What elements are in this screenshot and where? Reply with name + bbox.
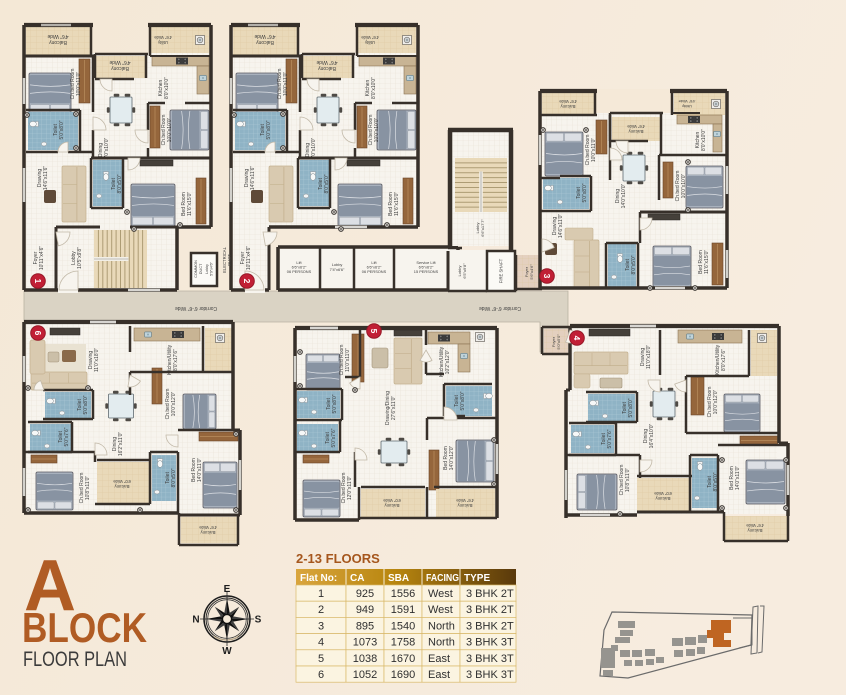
- svg-text:8'0"x17'6": 8'0"x17'6": [721, 349, 727, 371]
- svg-text:1038: 1038: [353, 653, 377, 665]
- svg-text:14'0"x11'0": 14'0"x11'0": [197, 458, 203, 482]
- svg-text:5'6"x4'6": 5'6"x4'6": [529, 264, 534, 280]
- svg-text:6'0" Wide: 6'0" Wide: [383, 498, 401, 503]
- svg-text:North: North: [428, 620, 455, 632]
- svg-text:5'0"x7'6": 5'0"x7'6": [331, 428, 337, 447]
- svg-text:DUCT: DUCT: [199, 263, 203, 274]
- svg-text:27'6"x11'0": 27'6"x11'0": [391, 396, 397, 420]
- svg-text:10'11"x4'6": 10'11"x4'6": [39, 246, 45, 270]
- svg-text:14'0"x12'0": 14'0"x12'0": [449, 445, 455, 470]
- svg-text:SBA: SBA: [388, 573, 409, 584]
- svg-text:16'4"x10'0": 16'4"x10'0": [649, 423, 655, 448]
- svg-text:4'6" Wide: 4'6" Wide: [678, 99, 696, 104]
- svg-text:FACING: FACING: [426, 573, 459, 584]
- svg-text:14'0"x11'0": 14'0"x11'0": [735, 466, 741, 490]
- svg-text:11'6"x15'0": 11'6"x15'0": [394, 192, 400, 216]
- svg-text:1758: 1758: [391, 637, 415, 649]
- svg-text:5'0"x8'0": 5'0"x8'0": [460, 391, 466, 410]
- svg-text:S: S: [255, 615, 262, 626]
- svg-text:West: West: [428, 588, 453, 600]
- svg-text:1052: 1052: [353, 669, 377, 681]
- svg-text:10'0"x11'0": 10'0"x11'0": [591, 138, 597, 162]
- svg-text:12'0"x11'0": 12'0"x11'0": [347, 476, 353, 500]
- svg-text:3 BHK 2T: 3 BHK 2T: [466, 620, 514, 632]
- svg-text:East: East: [428, 653, 450, 665]
- svg-text:1540: 1540: [391, 620, 415, 632]
- svg-text:6'0" Wide: 6'0" Wide: [113, 479, 131, 484]
- svg-text:4: 4: [318, 637, 324, 649]
- svg-text:CA: CA: [350, 573, 364, 584]
- svg-text:5'9"x4'6": 5'9"x4'6": [210, 261, 214, 275]
- svg-text:Corridor 6'-6" Wide: Corridor 6'-6" Wide: [479, 305, 521, 311]
- svg-text:N: N: [192, 615, 199, 626]
- svg-text:8'0"x10'0": 8'0"x10'0": [701, 129, 707, 151]
- svg-text:8'0"x5'0": 8'0"x5'0": [631, 255, 637, 274]
- svg-text:4'6" Wide: 4'6" Wide: [254, 33, 275, 39]
- svg-text:10'0"x12'0": 10'0"x12'0": [171, 391, 177, 416]
- svg-text:3 BHK 3T: 3 BHK 3T: [466, 669, 514, 681]
- svg-text:BLOCK: BLOCK: [22, 604, 147, 651]
- svg-text:15 PERSONS: 15 PERSONS: [414, 269, 439, 274]
- svg-text:3 BHK 3T: 3 BHK 3T: [466, 637, 514, 649]
- svg-text:10'0"x10'0": 10'0"x10'0": [167, 117, 173, 142]
- svg-text:10'2"x12'0": 10'2"x12'0": [445, 349, 451, 374]
- svg-text:16'2"x11'0": 16'2"x11'0": [118, 432, 124, 456]
- svg-text:14'6"x11'0": 14'6"x11'0": [558, 214, 564, 238]
- svg-text:10'8"x11'0": 10'8"x11'0": [625, 468, 631, 492]
- svg-text:6'5"x9'8": 6'5"x9'8": [462, 263, 467, 279]
- svg-text:06 PERSONS: 06 PERSONS: [287, 269, 312, 274]
- svg-text:8'0"x10'0": 8'0"x10'0": [164, 77, 170, 99]
- svg-text:Flat No:: Flat No:: [300, 573, 337, 584]
- svg-text:8'0"x10'0": 8'0"x10'0": [371, 77, 377, 99]
- svg-text:FLOOR PLAN: FLOOR PLAN: [23, 648, 127, 671]
- svg-text:895: 895: [356, 620, 374, 632]
- svg-text:3 BHK 2T: 3 BHK 2T: [466, 588, 514, 600]
- svg-text:4'6" Wide: 4'6" Wide: [559, 99, 577, 104]
- svg-text:North: North: [428, 637, 455, 649]
- svg-text:3: 3: [542, 274, 552, 279]
- svg-text:6: 6: [318, 669, 324, 681]
- svg-text:949: 949: [356, 604, 374, 616]
- svg-text:11'0"x11'0": 11'0"x11'0": [345, 348, 351, 372]
- svg-text:06 PERSONS: 06 PERSONS: [362, 269, 387, 274]
- svg-text:11'0"x18'0": 11'0"x18'0": [646, 345, 652, 369]
- svg-text:4'6" Wide: 4'6" Wide: [627, 124, 645, 129]
- svg-text:3 BHK 3T: 3 BHK 3T: [466, 653, 514, 665]
- svg-text:1670: 1670: [391, 653, 415, 665]
- svg-text:6'0" Wide: 6'0" Wide: [654, 491, 672, 496]
- svg-text:5'0"x8'0": 5'0"x8'0": [628, 398, 634, 417]
- svg-text:2-13 FLOORS: 2-13 FLOORS: [296, 551, 380, 566]
- svg-text:1591: 1591: [391, 604, 415, 616]
- svg-text:4'6" Wide: 4'6" Wide: [456, 498, 474, 503]
- svg-text:8'0"x5'0": 8'0"x5'0": [171, 468, 177, 487]
- svg-text:11'0"x18'0": 11'0"x18'0": [94, 348, 100, 372]
- svg-text:1: 1: [318, 588, 324, 600]
- svg-text:TYPE: TYPE: [464, 573, 490, 584]
- svg-text:10'0"x11'0": 10'0"x11'0": [283, 72, 289, 96]
- svg-text:10'8"x11'0": 10'8"x11'0": [85, 476, 91, 500]
- svg-text:14'6"x11'6": 14'6"x11'6": [250, 166, 256, 190]
- svg-text:4: 4: [572, 336, 582, 341]
- svg-text:10'0"x11'0": 10'0"x11'0": [76, 72, 82, 96]
- svg-text:1690: 1690: [391, 669, 415, 681]
- svg-text:4'6" Wide: 4'6" Wide: [199, 525, 217, 530]
- svg-text:E: E: [224, 584, 231, 595]
- svg-text:925: 925: [356, 588, 374, 600]
- svg-text:1073: 1073: [353, 637, 377, 649]
- svg-text:6: 6: [33, 331, 43, 336]
- svg-text:11'6"x15'0": 11'6"x15'0": [187, 192, 193, 216]
- svg-text:14'0"x10'0": 14'0"x10'0": [621, 183, 627, 208]
- svg-text:FIRE SHAFT: FIRE SHAFT: [499, 258, 504, 283]
- svg-text:6'6"x17'7": 6'6"x17'7": [480, 219, 485, 237]
- svg-text:5'0"x5'0": 5'0"x5'0": [556, 334, 561, 350]
- svg-text:10'5"x9'8": 10'5"x9'8": [77, 247, 83, 269]
- svg-text:7'4"x6'6": 7'4"x6'6": [330, 267, 345, 272]
- svg-text:11'6"x15'0": 11'6"x15'0": [704, 250, 710, 274]
- svg-text:4'6" Wide: 4'6" Wide: [316, 59, 337, 65]
- svg-text:5'0"x8'0": 5'0"x8'0": [266, 120, 272, 139]
- svg-text:4'6" Wide: 4'6" Wide: [154, 35, 172, 40]
- svg-text:1556: 1556: [391, 588, 415, 600]
- svg-text:2: 2: [318, 604, 324, 616]
- svg-text:5'0"x8'0": 5'0"x8'0": [332, 394, 338, 413]
- svg-text:East: East: [428, 669, 450, 681]
- svg-text:3 BHK 2T: 3 BHK 2T: [466, 604, 514, 616]
- svg-text:Corridor 6'-6" Wide: Corridor 6'-6" Wide: [175, 305, 217, 311]
- svg-text:5'0"x7'6": 5'0"x7'6": [607, 429, 613, 448]
- svg-text:Lobby: Lobby: [205, 264, 209, 274]
- svg-text:4'6" Wide: 4'6" Wide: [47, 33, 68, 39]
- svg-text:1: 1: [33, 279, 43, 284]
- svg-text:5: 5: [369, 329, 379, 334]
- svg-text:10'0"x10'0": 10'0"x10'0": [374, 117, 380, 142]
- svg-text:4'6" Wide: 4'6" Wide: [361, 35, 379, 40]
- svg-text:10'0"x12'0": 10'0"x12'0": [713, 389, 719, 414]
- svg-text:10'11"x4'6": 10'11"x4'6": [246, 246, 252, 270]
- svg-text:8'0"x17'6": 8'0"x17'6": [173, 349, 179, 371]
- svg-text:5'0"x8'0": 5'0"x8'0": [582, 183, 588, 202]
- svg-text:5'0"x8'0": 5'0"x8'0": [59, 120, 65, 139]
- svg-text:10'0"x10'0": 10'0"x10'0": [681, 173, 687, 198]
- svg-text:5: 5: [318, 653, 324, 665]
- svg-text:5'0"x7'6": 5'0"x7'6": [64, 427, 70, 446]
- svg-text:4'6" Wide: 4'6" Wide: [746, 523, 764, 528]
- svg-text:W: W: [222, 646, 232, 657]
- svg-text:2: 2: [242, 279, 252, 284]
- svg-text:5'0"x8'0": 5'0"x8'0": [83, 395, 89, 414]
- svg-text:3: 3: [318, 620, 324, 632]
- svg-text:West: West: [428, 604, 453, 616]
- svg-text:14'6"x11'6": 14'6"x11'6": [43, 166, 49, 190]
- svg-text:DUCT: DUCT: [227, 254, 232, 266]
- svg-text:COMMON: COMMON: [194, 260, 198, 278]
- svg-text:4'6" Wide: 4'6" Wide: [109, 59, 130, 65]
